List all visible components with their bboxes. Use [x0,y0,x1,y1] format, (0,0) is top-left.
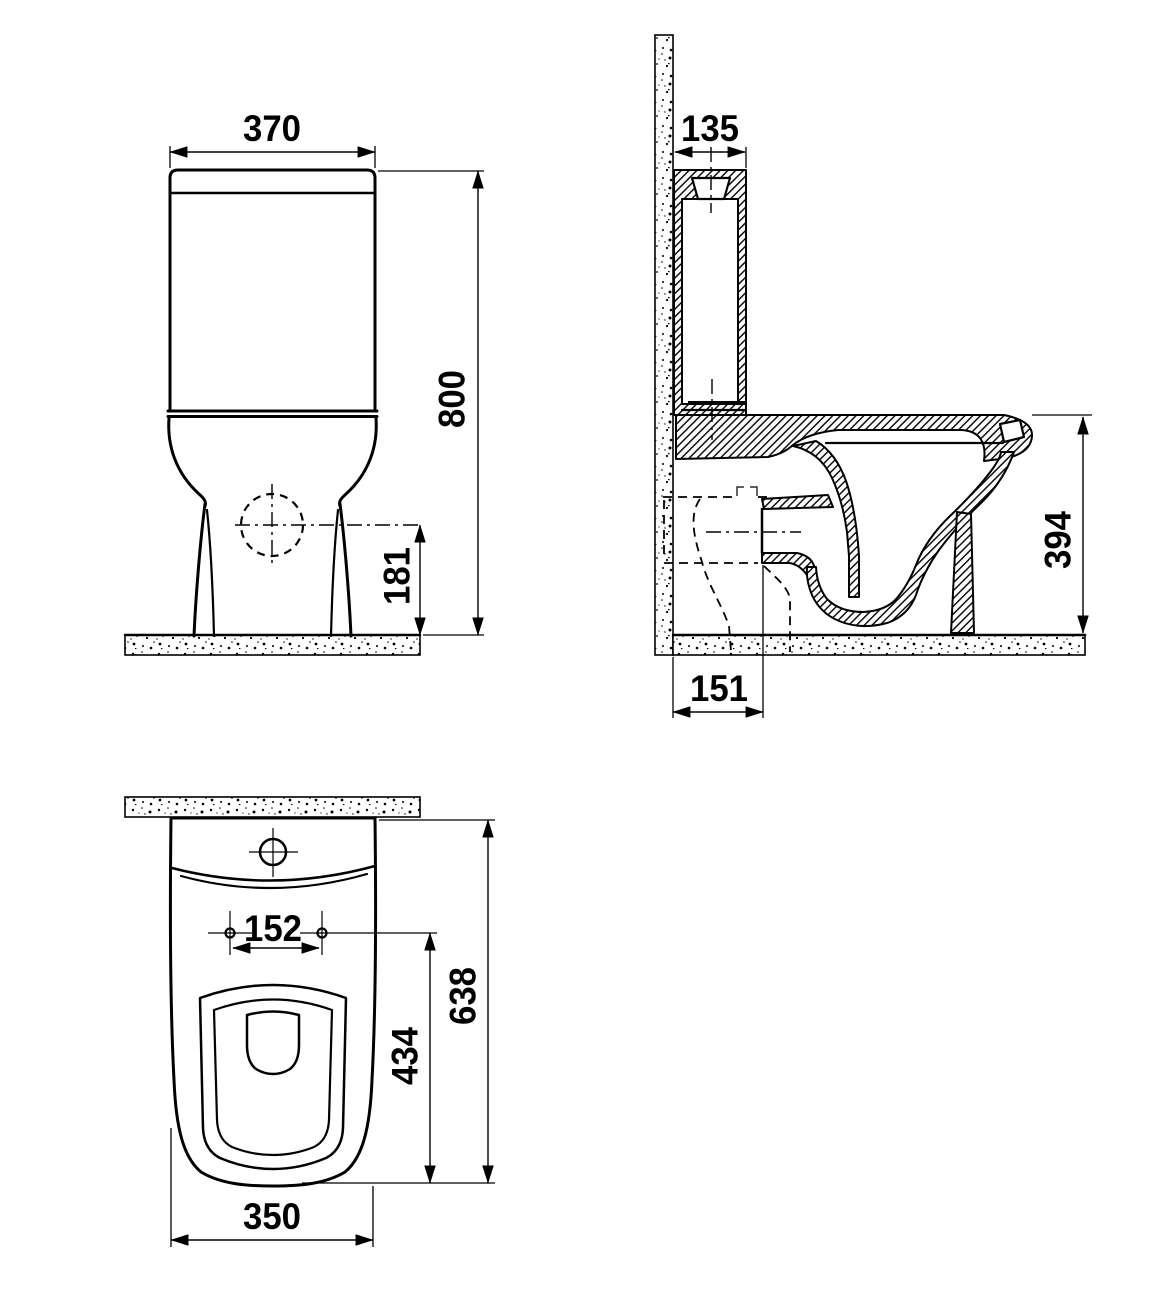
dim-front-width-label: 370 [243,108,301,149]
dim-plan-bowl-width-label: 350 [243,1196,301,1237]
dim-plan-hole-spacing-label: 152 [244,908,302,949]
pedestal-left-outer [194,504,205,636]
dim-front-height-label: 800 [432,370,473,428]
cistern-section [674,170,746,415]
front-view: 370 800 181 [125,108,484,655]
technical-drawing-page: 370 800 181 135 [0,0,1168,1296]
bowl-side-left [169,418,206,506]
flush-button-crosshair [249,828,298,877]
outlet-socket-top [762,495,833,509]
bowl-funnel-section [793,441,859,597]
bowl-side-right [340,418,377,506]
dim-side-cistern-depth-label: 135 [681,108,739,149]
floor-section-front [125,635,420,655]
toilet-dimension-drawing: 370 800 181 135 [0,0,1168,1296]
hidden-outlet-notch [737,487,757,496]
water-spot-outline [247,1012,299,1075]
plan-view: 152 638 434 350 [125,797,495,1247]
cistern-outline-front [170,170,375,409]
seat-fixing-hole-section [1000,420,1024,442]
wall-section-plan [125,797,420,817]
wall-section [655,35,673,655]
dim-plan-total-depth-label: 638 [443,967,484,1025]
dim-side-rim-height-label: 394 [1038,511,1079,569]
pedestal-right-outer [340,504,351,636]
side-view: 135 394 151 [655,35,1092,718]
seat-ring-inner [214,1000,332,1156]
flush-valve-seal [688,401,746,405]
floor-section-side [673,635,1085,655]
bowl-rim-section [676,415,1032,461]
extension-lines-width [170,146,375,168]
pedestal-left-inner [207,510,214,636]
dim-side-outlet-offset-label: 151 [690,668,748,709]
dim-plan-holes-to-front-label: 434 [385,1027,426,1085]
dim-front-outlet-height-label: 181 [377,547,418,605]
hidden-pipe-curve-left [694,499,731,652]
pedestal-right-inner [331,510,338,636]
